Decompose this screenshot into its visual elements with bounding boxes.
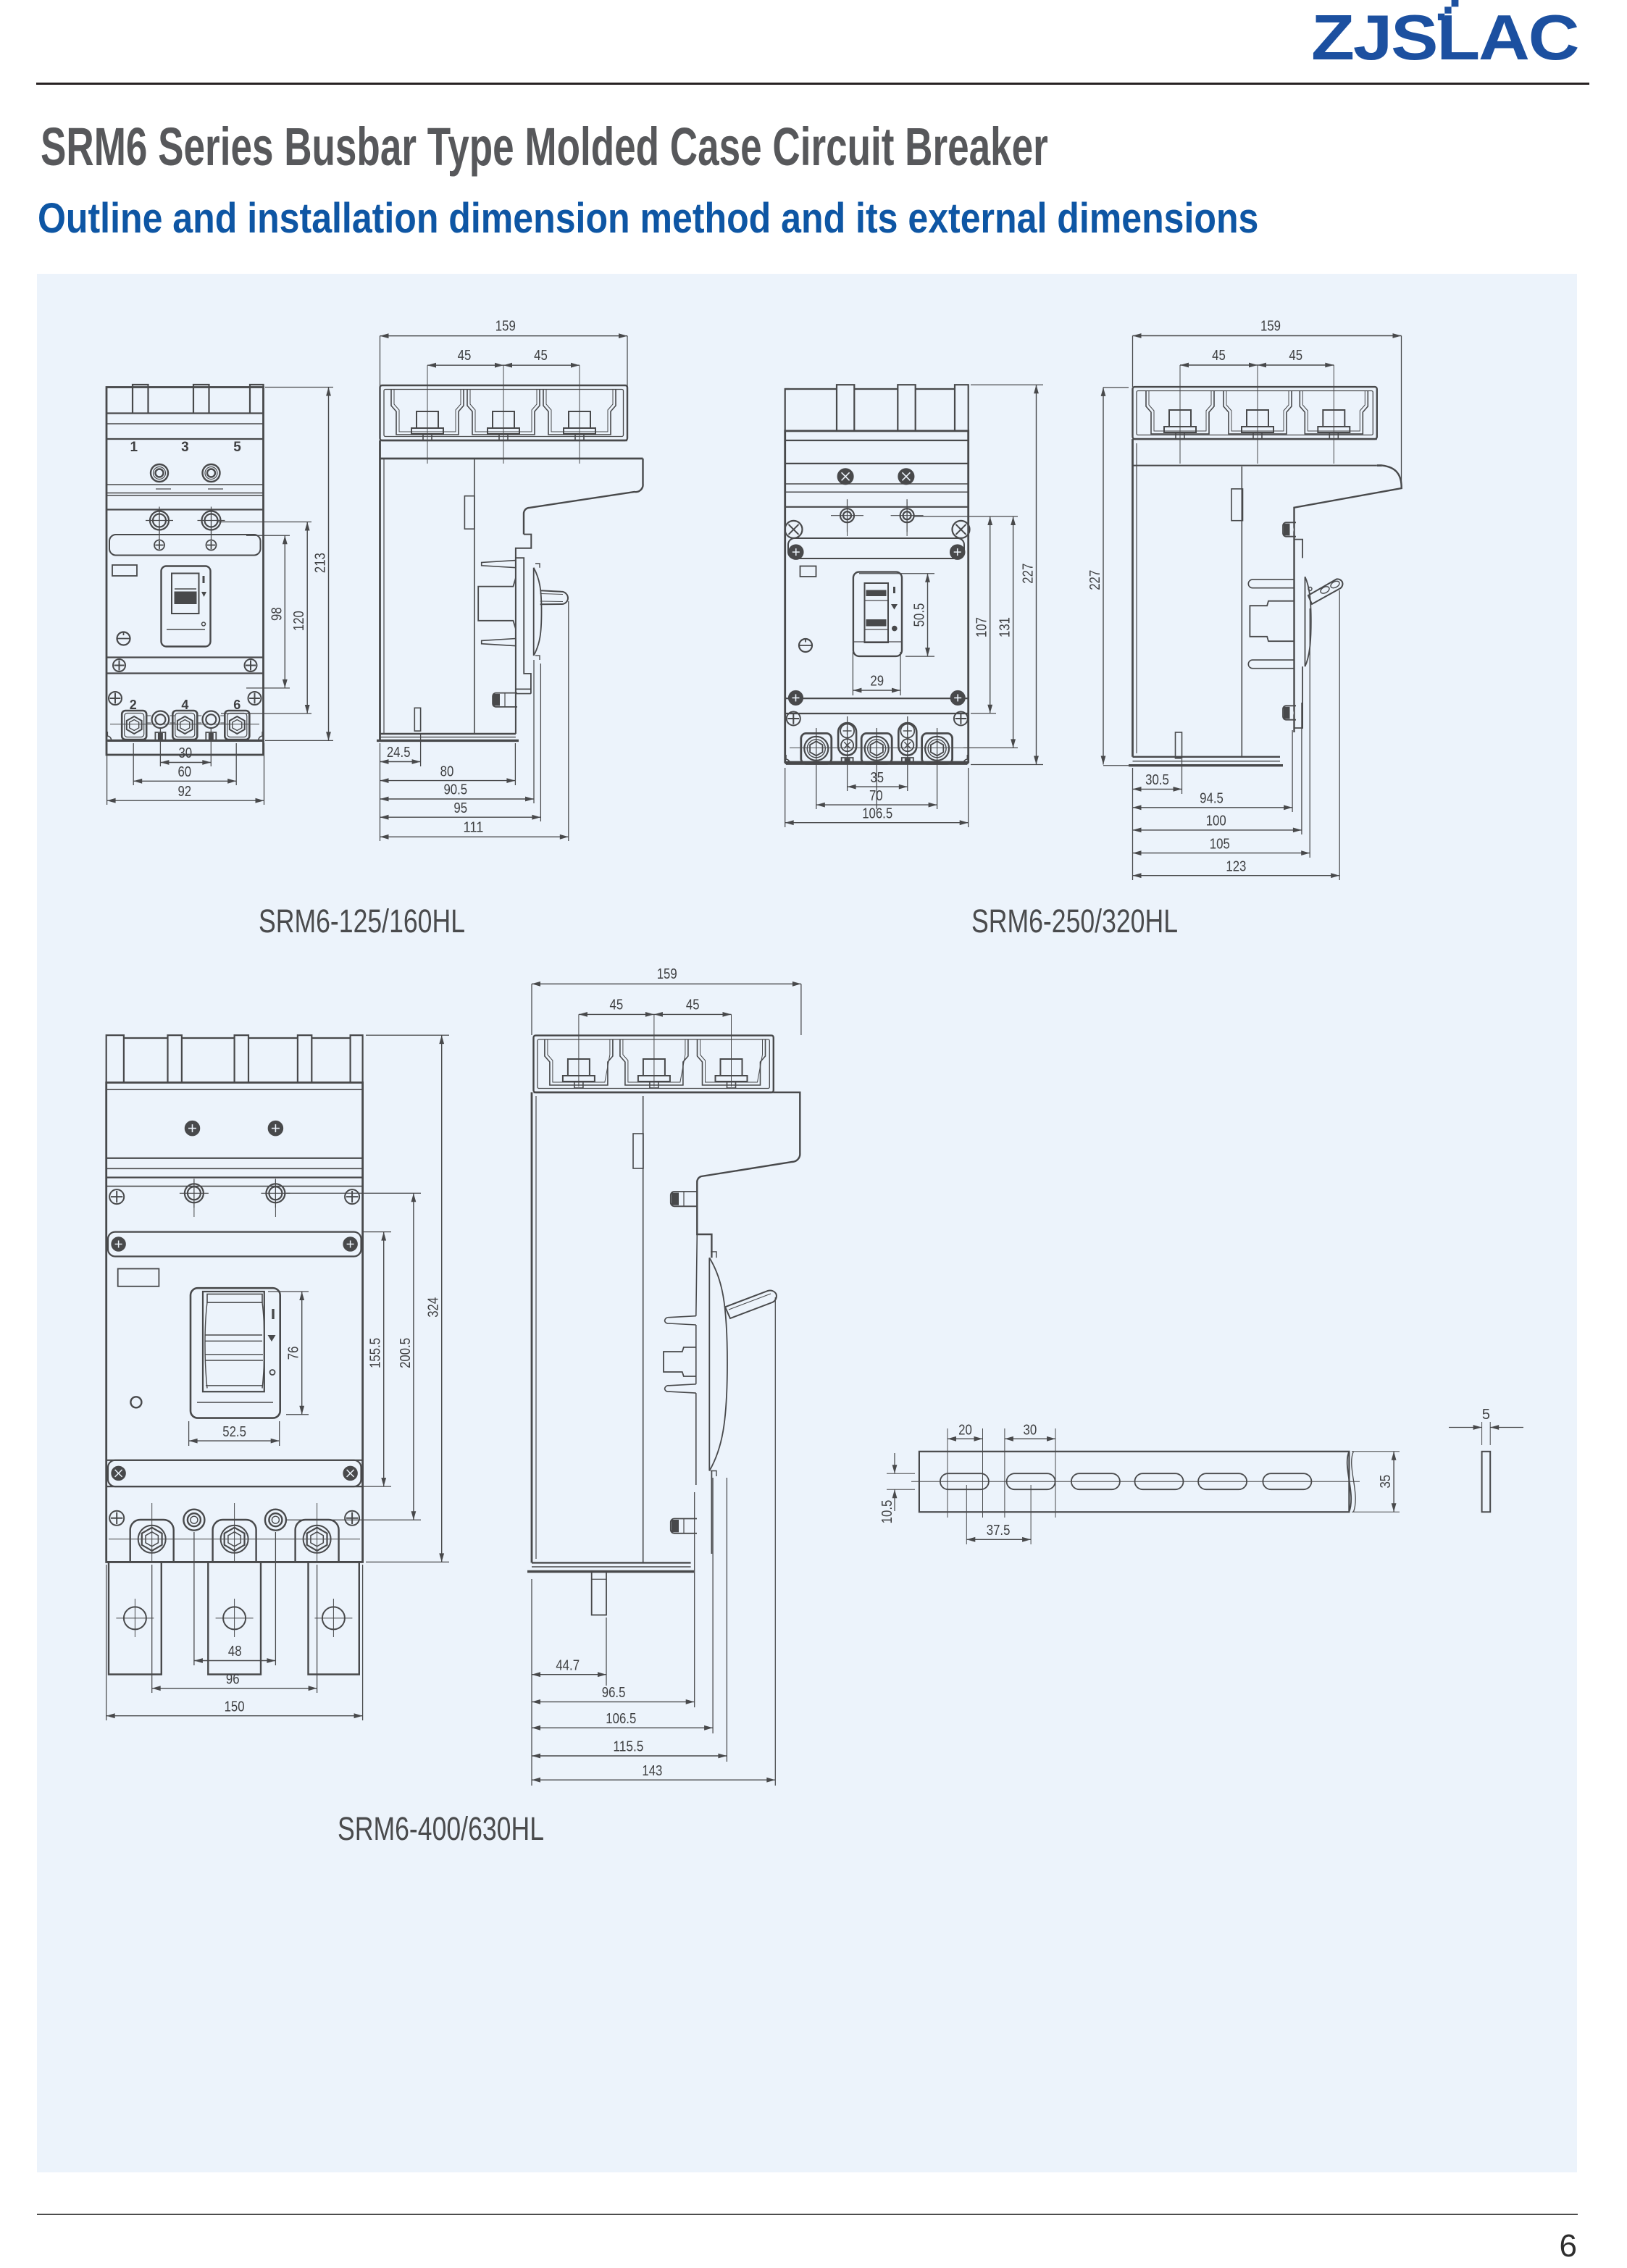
svg-text:98: 98 (269, 607, 285, 621)
svg-text:5: 5 (233, 440, 241, 455)
svg-text:106.5: 106.5 (606, 1711, 636, 1727)
svg-text:155.5: 155.5 (368, 1338, 384, 1368)
svg-text:44.7: 44.7 (556, 1657, 580, 1673)
svg-text:143: 143 (642, 1763, 662, 1779)
svg-text:120: 120 (291, 611, 307, 631)
svg-text:30: 30 (1024, 1422, 1037, 1438)
svg-text:37.5: 37.5 (987, 1523, 1011, 1539)
svg-text:200.5: 200.5 (398, 1338, 414, 1368)
svg-text:96.5: 96.5 (602, 1685, 626, 1701)
svg-text:30.5: 30.5 (1145, 772, 1169, 788)
svg-text:96: 96 (226, 1671, 240, 1687)
svg-text:1: 1 (130, 440, 138, 455)
svg-text:159: 159 (657, 966, 677, 982)
svg-text:10.5: 10.5 (879, 1500, 895, 1524)
svg-text:111: 111 (463, 819, 483, 835)
svg-text:3: 3 (181, 440, 189, 455)
svg-text:100: 100 (1206, 813, 1226, 829)
svg-text:70: 70 (869, 788, 883, 804)
svg-text:227: 227 (1021, 564, 1037, 584)
svg-text:35: 35 (1378, 1475, 1394, 1489)
svg-text:24.5: 24.5 (387, 745, 411, 761)
svg-text:45: 45 (534, 348, 548, 364)
svg-text:105: 105 (1210, 836, 1230, 852)
svg-text:SRM6-400/630HL: SRM6-400/630HL (338, 1810, 544, 1847)
svg-text:115.5: 115.5 (613, 1739, 643, 1755)
svg-text:45: 45 (1289, 348, 1302, 364)
svg-text:159: 159 (495, 319, 516, 335)
svg-text:48: 48 (228, 1644, 242, 1660)
svg-text:107: 107 (974, 617, 990, 637)
svg-text:60: 60 (177, 764, 191, 780)
svg-text:45: 45 (610, 997, 624, 1013)
svg-text:29: 29 (870, 674, 884, 690)
svg-text:30: 30 (178, 745, 192, 761)
svg-text:50.5: 50.5 (912, 603, 928, 627)
svg-text:80: 80 (440, 763, 454, 779)
svg-text:76: 76 (286, 1347, 302, 1360)
svg-text:45: 45 (458, 348, 472, 364)
svg-text:90.5: 90.5 (443, 782, 467, 798)
svg-text:95: 95 (453, 800, 467, 816)
svg-text:150: 150 (225, 1699, 245, 1715)
svg-text:45: 45 (686, 997, 700, 1013)
svg-text:SRM6-250/320HL: SRM6-250/320HL (971, 903, 1178, 940)
svg-text:131: 131 (997, 617, 1013, 637)
svg-text:159: 159 (1260, 318, 1281, 334)
svg-text:45: 45 (1212, 348, 1226, 364)
svg-text:227: 227 (1087, 570, 1103, 590)
svg-text:20: 20 (958, 1422, 972, 1438)
svg-text:SRM6-125/160HL: SRM6-125/160HL (259, 903, 465, 940)
svg-text:52.5: 52.5 (222, 1424, 246, 1440)
svg-text:35: 35 (870, 770, 884, 786)
svg-text:94.5: 94.5 (1200, 791, 1224, 807)
svg-text:92: 92 (177, 784, 191, 800)
svg-text:5: 5 (1482, 1407, 1490, 1423)
svg-text:106.5: 106.5 (862, 805, 892, 821)
svg-text:324: 324 (426, 1297, 442, 1318)
svg-text:123: 123 (1226, 858, 1246, 874)
svg-text:213: 213 (312, 553, 328, 573)
